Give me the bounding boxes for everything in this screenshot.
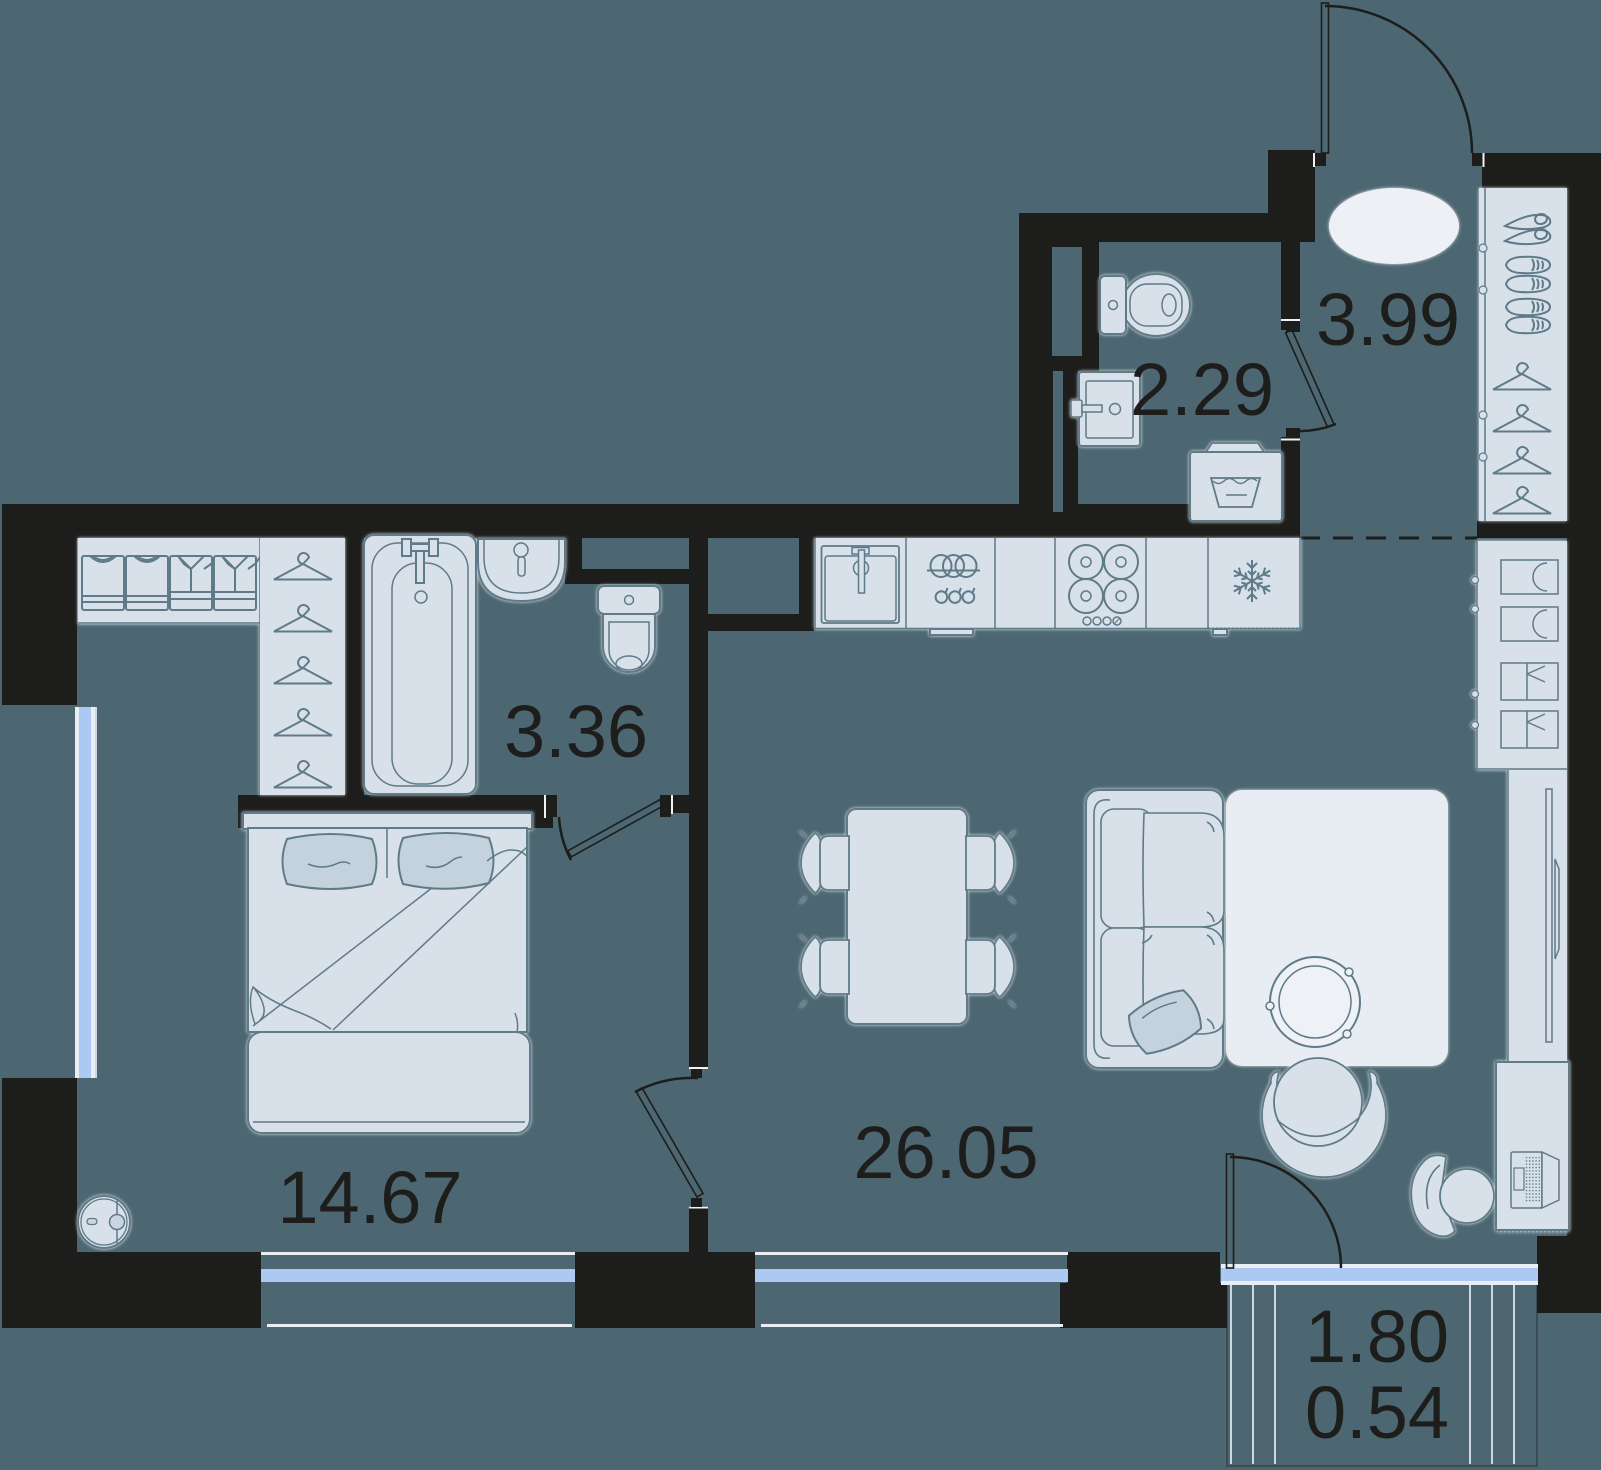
svg-text:1.80: 1.80 <box>1305 1295 1449 1378</box>
svg-text:26.05: 26.05 <box>853 1111 1038 1194</box>
svg-text:3.36: 3.36 <box>504 690 648 773</box>
svg-text:0.54: 0.54 <box>1305 1371 1449 1454</box>
svg-text:2.29: 2.29 <box>1130 348 1274 431</box>
svg-text:14.67: 14.67 <box>277 1156 462 1239</box>
svg-text:3.99: 3.99 <box>1316 278 1460 361</box>
